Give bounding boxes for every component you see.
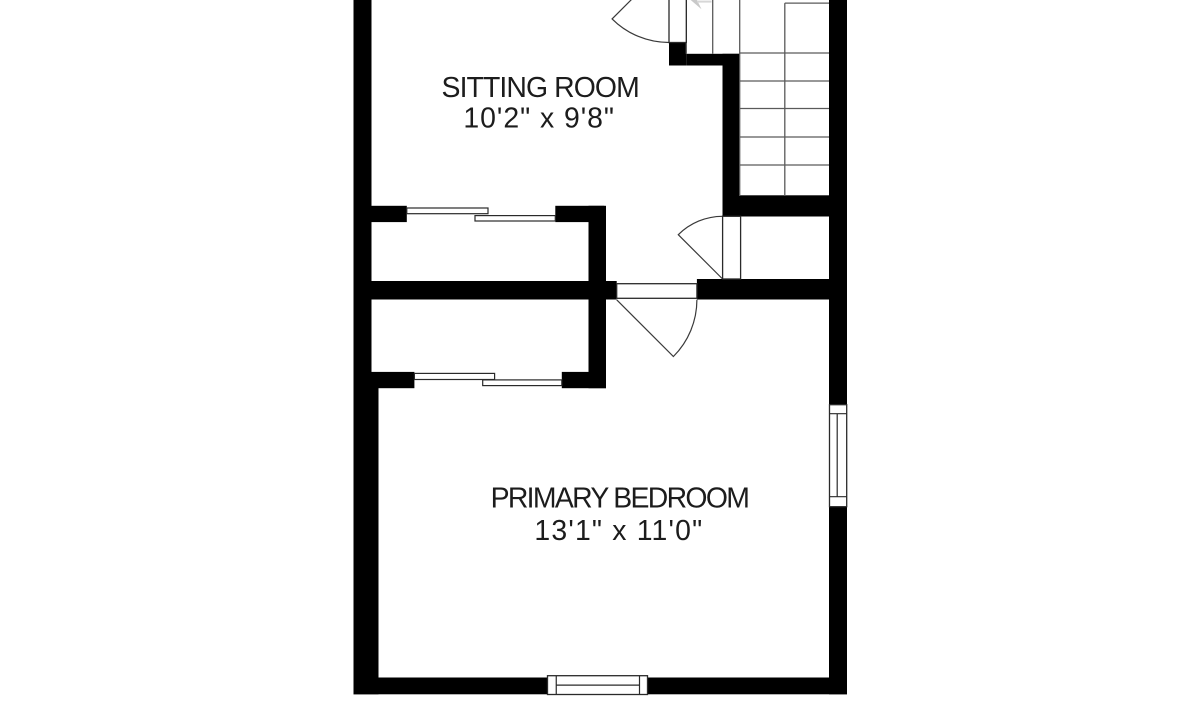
svg-text:13'1" x 11'0": 13'1" x 11'0": [534, 515, 703, 547]
svg-text:10'2" x 9'8": 10'2" x 9'8": [463, 102, 615, 134]
svg-text:PRIMARY BEDROOM: PRIMARY BEDROOM: [491, 483, 749, 515]
svg-text:SITTING ROOM: SITTING ROOM: [442, 72, 639, 104]
